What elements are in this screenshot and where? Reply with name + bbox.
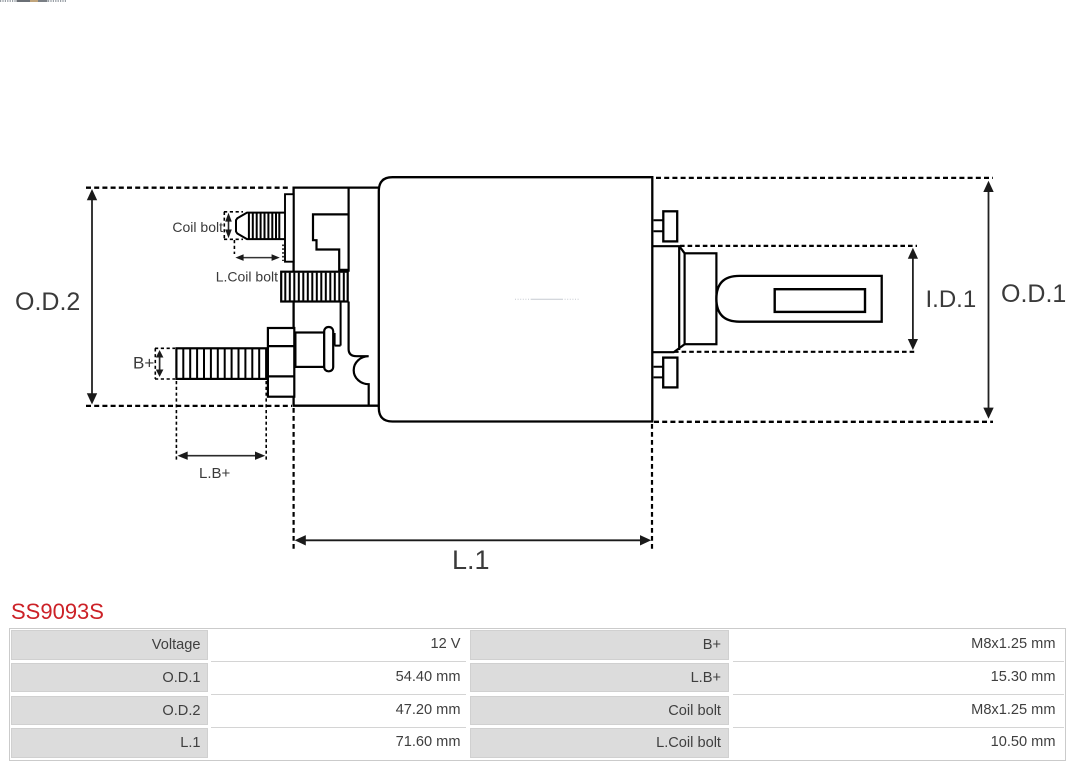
svg-text:O.D.1: O.D.1 bbox=[1001, 280, 1066, 308]
svg-text:I.D.1: I.D.1 bbox=[926, 286, 977, 313]
svg-text:B+: B+ bbox=[133, 353, 154, 372]
svg-text:Coil bolt: Coil bolt bbox=[172, 219, 223, 235]
svg-text:L.1: L.1 bbox=[452, 545, 490, 575]
svg-text:O.D.2: O.D.2 bbox=[15, 288, 80, 316]
svg-text:L.Coil bolt: L.Coil bolt bbox=[216, 269, 278, 285]
svg-text:L.B+: L.B+ bbox=[199, 465, 231, 482]
